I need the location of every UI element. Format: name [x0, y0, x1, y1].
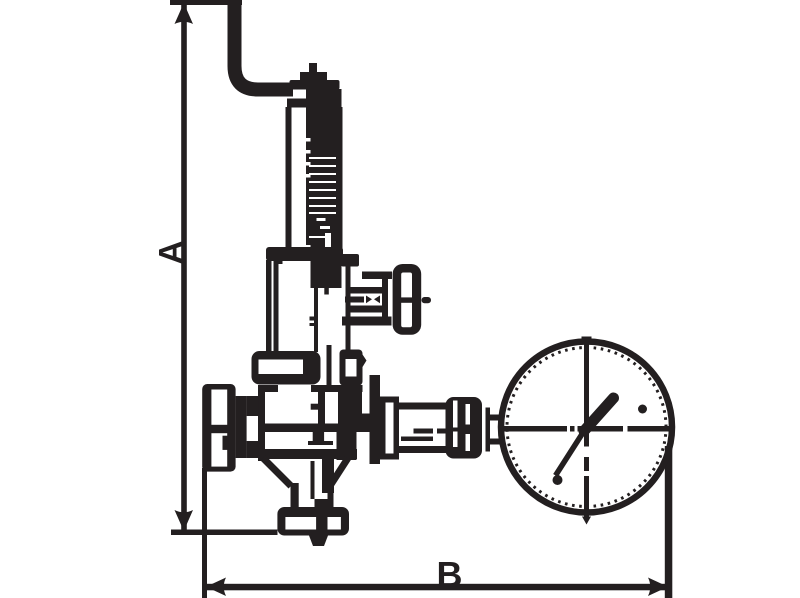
svg-text:B: B — [437, 554, 463, 595]
svg-text:A: A — [152, 240, 190, 265]
